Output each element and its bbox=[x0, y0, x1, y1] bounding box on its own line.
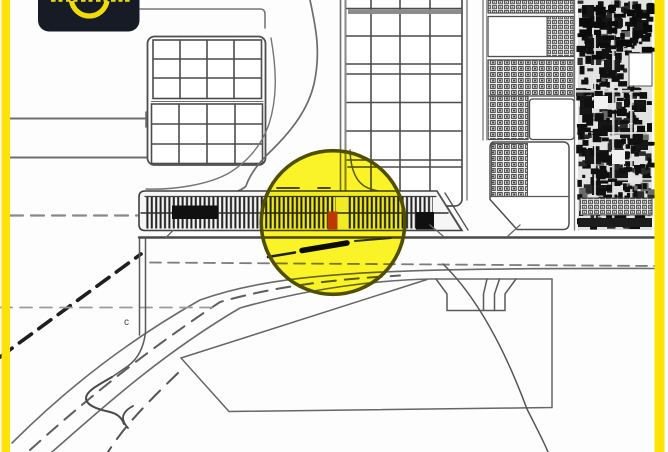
svg-text:c: c bbox=[124, 317, 129, 328]
